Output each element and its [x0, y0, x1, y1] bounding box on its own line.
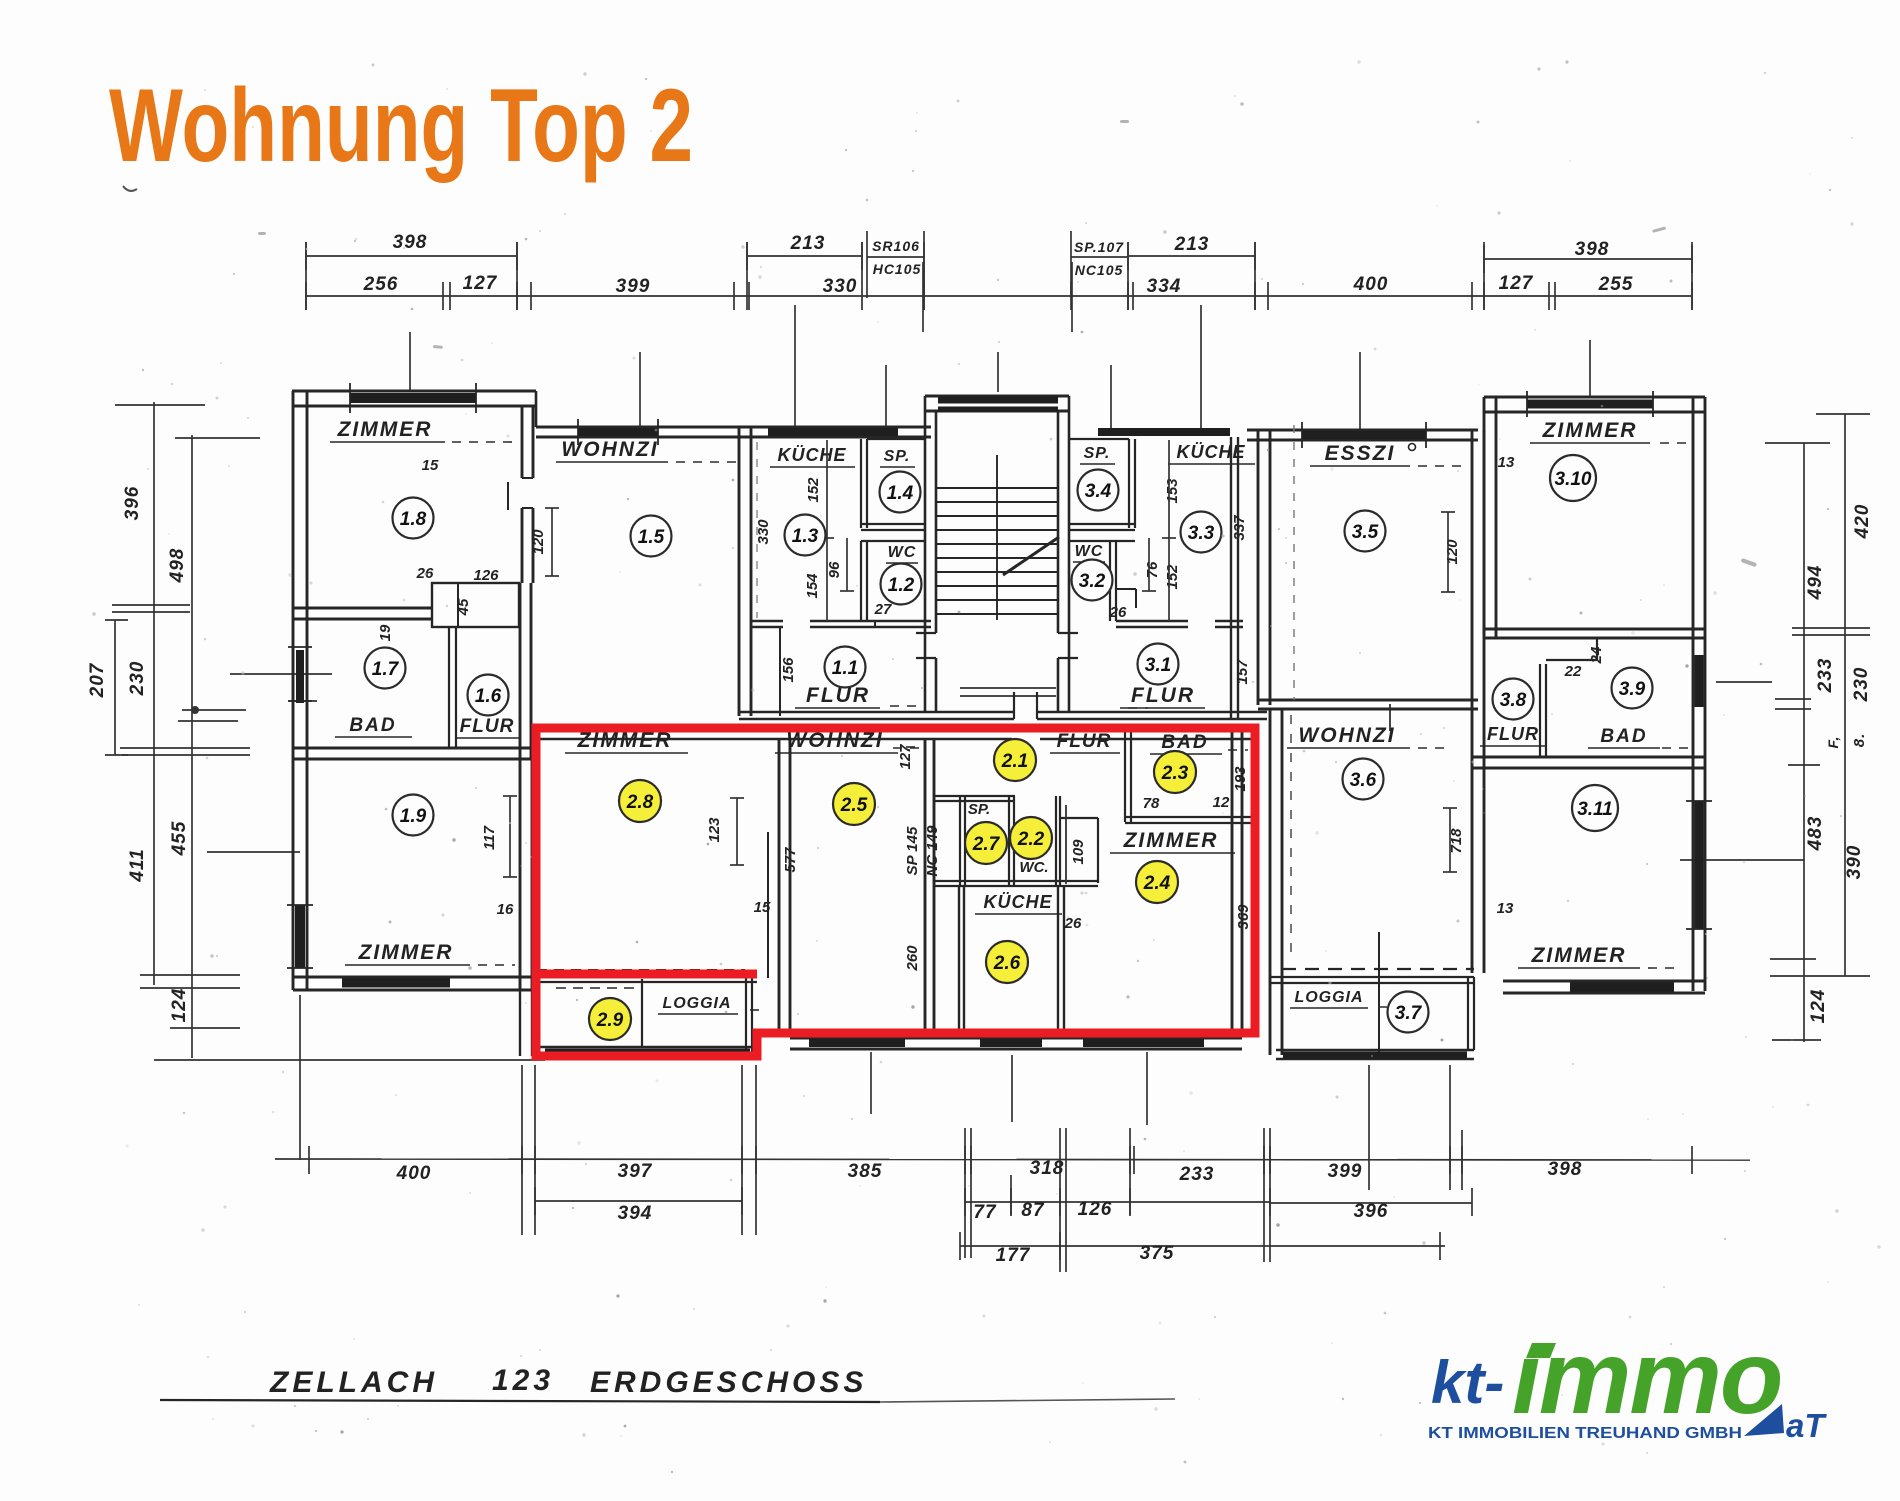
svg-text:ERDGESCHOSS: ERDGESCHOSS: [590, 1366, 867, 1399]
svg-text:3.7: 3.7: [1395, 1003, 1423, 1024]
svg-text:230: 230: [1851, 667, 1872, 703]
svg-text:76: 76: [1144, 561, 1161, 578]
svg-text:27: 27: [874, 601, 892, 618]
svg-text:213: 213: [1174, 234, 1210, 255]
svg-text:26: 26: [1064, 915, 1082, 932]
svg-text:157: 157: [1234, 659, 1251, 685]
svg-text:FLUR: FLUR: [1131, 684, 1195, 707]
svg-text:KÜCHE: KÜCHE: [983, 892, 1052, 912]
svg-text:2.2: 2.2: [1017, 829, 1045, 850]
svg-text:3.9: 3.9: [1619, 679, 1646, 700]
svg-text:KÜCHE: KÜCHE: [1176, 442, 1245, 462]
svg-text:156: 156: [780, 657, 797, 683]
svg-text:12: 12: [1213, 794, 1230, 811]
svg-text:3.4: 3.4: [1085, 481, 1112, 502]
svg-text:16: 16: [497, 901, 514, 918]
svg-text:256: 256: [363, 274, 399, 295]
svg-text:397: 397: [618, 1161, 653, 1182]
svg-text:124: 124: [169, 988, 190, 1023]
svg-text:WC: WC: [888, 544, 917, 561]
svg-text:13: 13: [1497, 900, 1514, 917]
svg-text:369: 369: [1235, 904, 1252, 930]
svg-text:213: 213: [790, 233, 826, 254]
svg-text:483: 483: [1805, 816, 1826, 852]
svg-text:3.8: 3.8: [1500, 690, 1527, 711]
svg-text:494: 494: [1805, 565, 1826, 601]
svg-text:399: 399: [1328, 1161, 1363, 1182]
svg-text:398: 398: [1575, 239, 1610, 260]
svg-text:F,: F,: [1825, 736, 1841, 749]
svg-text:394: 394: [618, 1203, 653, 1224]
svg-text:233: 233: [1179, 1164, 1215, 1185]
svg-text:26: 26: [1109, 604, 1127, 621]
svg-text:117: 117: [481, 825, 498, 850]
svg-text:aT: aT: [1786, 1407, 1827, 1444]
svg-text:318: 318: [1030, 1158, 1065, 1179]
svg-text:126: 126: [473, 567, 499, 584]
svg-text:1.4: 1.4: [887, 483, 914, 504]
svg-text:NC 149: NC 149: [924, 825, 941, 877]
svg-text:FLUR: FLUR: [1057, 731, 1112, 752]
svg-text:498: 498: [167, 548, 188, 584]
svg-text:127: 127: [463, 273, 498, 294]
svg-text:19: 19: [377, 624, 394, 641]
svg-text:2.1: 2.1: [1001, 751, 1028, 772]
svg-text:3.2: 3.2: [1079, 571, 1106, 592]
svg-text:BAD: BAD: [1600, 726, 1647, 747]
svg-text:120: 120: [530, 529, 547, 555]
svg-text:SP.: SP.: [884, 448, 911, 465]
svg-text:Wohnung Top 2: Wohnung Top 2: [109, 68, 693, 184]
svg-text:ESSZI: ESSZI: [1325, 442, 1396, 465]
svg-text:120: 120: [1444, 539, 1461, 565]
svg-text:13: 13: [1498, 454, 1515, 471]
svg-text:SP.: SP.: [1084, 445, 1111, 462]
svg-text:153: 153: [1164, 478, 1181, 504]
svg-text:SP 145: SP 145: [904, 826, 921, 875]
svg-text:260: 260: [904, 945, 921, 972]
svg-text:immo: immo: [1512, 1320, 1781, 1436]
svg-text:ZIMMER: ZIMMER: [1542, 419, 1638, 442]
svg-text:8.: 8.: [1851, 733, 1868, 748]
svg-text:WOHNZI: WOHNZI: [1298, 724, 1395, 747]
svg-text:398: 398: [1548, 1159, 1583, 1180]
svg-text:FLUR: FLUR: [806, 684, 870, 707]
svg-text:177: 177: [996, 1245, 1031, 1266]
svg-text:1.5: 1.5: [638, 527, 665, 548]
svg-text:87: 87: [1021, 1200, 1045, 1221]
svg-text:KT IMMOBILIEN TREUHAND GMBH: KT IMMOBILIEN TREUHAND GMBH: [1428, 1425, 1742, 1442]
svg-text:124: 124: [1808, 989, 1829, 1024]
svg-text:396: 396: [122, 486, 143, 521]
svg-text:255: 255: [1598, 274, 1634, 295]
svg-text:193: 193: [1232, 766, 1249, 792]
svg-text:400: 400: [396, 1163, 432, 1184]
svg-text:15: 15: [754, 899, 771, 916]
svg-text:SR106: SR106: [872, 238, 920, 254]
svg-text:2.3: 2.3: [1161, 763, 1189, 784]
svg-text:577: 577: [782, 847, 799, 873]
svg-text:WOHNZI: WOHNZI: [561, 438, 658, 461]
svg-text:ZIMMER: ZIMMER: [337, 418, 433, 441]
svg-text:1.3: 1.3: [792, 526, 819, 547]
svg-text:230: 230: [127, 661, 148, 697]
svg-text:396: 396: [1354, 1201, 1389, 1222]
svg-text:455: 455: [169, 821, 190, 857]
svg-text:127: 127: [1499, 273, 1534, 294]
svg-text:15: 15: [422, 457, 439, 474]
svg-text:1.7: 1.7: [372, 659, 400, 680]
svg-text:ZIMMER: ZIMMER: [358, 941, 454, 964]
svg-text:1.8: 1.8: [400, 509, 427, 530]
svg-text:WC: WC: [1075, 543, 1104, 560]
svg-text:399: 399: [616, 276, 651, 297]
svg-text:77: 77: [973, 1202, 997, 1223]
svg-text:334: 334: [1147, 276, 1182, 297]
svg-text:FLUR: FLUR: [460, 716, 515, 737]
svg-text:3.11: 3.11: [1577, 799, 1613, 820]
svg-text:kt-: kt-: [1431, 1349, 1504, 1416]
svg-text:FLUR: FLUR: [1487, 724, 1539, 744]
svg-text:123: 123: [492, 1364, 554, 1397]
svg-text:KÜCHE: KÜCHE: [777, 445, 846, 465]
svg-text:ZIMMER: ZIMMER: [1531, 944, 1627, 967]
svg-text:330: 330: [823, 276, 858, 297]
svg-text:400: 400: [1353, 274, 1389, 295]
svg-text:BAD: BAD: [349, 715, 396, 736]
svg-text:3.6: 3.6: [1350, 770, 1377, 791]
svg-text:LOGGIA: LOGGIA: [1294, 989, 1363, 1006]
svg-text:NC105: NC105: [1075, 262, 1124, 278]
svg-text:SP.: SP.: [968, 801, 990, 818]
svg-text:109: 109: [1070, 839, 1087, 865]
svg-text:BAD: BAD: [1161, 732, 1208, 753]
svg-text:24: 24: [1588, 646, 1605, 664]
svg-text:126: 126: [1078, 1199, 1113, 1220]
svg-text:3.1: 3.1: [1145, 655, 1171, 676]
svg-text:SP.107: SP.107: [1074, 239, 1124, 255]
svg-text:2.9: 2.9: [596, 1010, 624, 1031]
svg-text:337: 337: [1231, 515, 1248, 541]
svg-text:385: 385: [848, 1161, 883, 1182]
svg-text:398: 398: [393, 232, 428, 253]
svg-text:ZIMMER: ZIMMER: [1123, 829, 1219, 852]
svg-text:96: 96: [826, 561, 843, 578]
svg-text:233: 233: [1815, 658, 1836, 694]
svg-text:152: 152: [805, 477, 822, 503]
svg-text:375: 375: [1140, 1243, 1175, 1264]
svg-text:HC105: HC105: [873, 261, 922, 277]
svg-text:1.2: 1.2: [888, 575, 915, 596]
svg-text:1.9: 1.9: [400, 806, 427, 827]
svg-text:2.8: 2.8: [626, 792, 654, 813]
svg-text:1.6: 1.6: [475, 686, 502, 707]
svg-text:3.3: 3.3: [1188, 523, 1215, 544]
svg-text:2.4: 2.4: [1143, 873, 1171, 894]
svg-text:ZELLACH: ZELLACH: [269, 1366, 438, 1399]
svg-text:3.5: 3.5: [1352, 522, 1379, 543]
svg-text:3.10: 3.10: [1555, 469, 1592, 490]
svg-text:2.6: 2.6: [993, 953, 1021, 974]
svg-text:1.1: 1.1: [832, 658, 858, 679]
svg-text:WC.: WC.: [1019, 859, 1048, 876]
svg-text:78: 78: [1143, 795, 1160, 812]
svg-text:45: 45: [455, 598, 472, 616]
svg-text:123: 123: [706, 817, 723, 843]
svg-text:207: 207: [87, 662, 108, 698]
svg-text:LOGGIA: LOGGIA: [662, 995, 731, 1012]
svg-text:390: 390: [1844, 845, 1865, 880]
svg-text:154: 154: [804, 573, 821, 599]
svg-text:2.7: 2.7: [972, 834, 1001, 855]
svg-text:152: 152: [1164, 564, 1181, 590]
svg-text:22: 22: [1564, 663, 1582, 680]
svg-text:411: 411: [127, 848, 148, 882]
svg-text:420: 420: [1852, 504, 1873, 540]
svg-text:2.5: 2.5: [840, 795, 868, 816]
